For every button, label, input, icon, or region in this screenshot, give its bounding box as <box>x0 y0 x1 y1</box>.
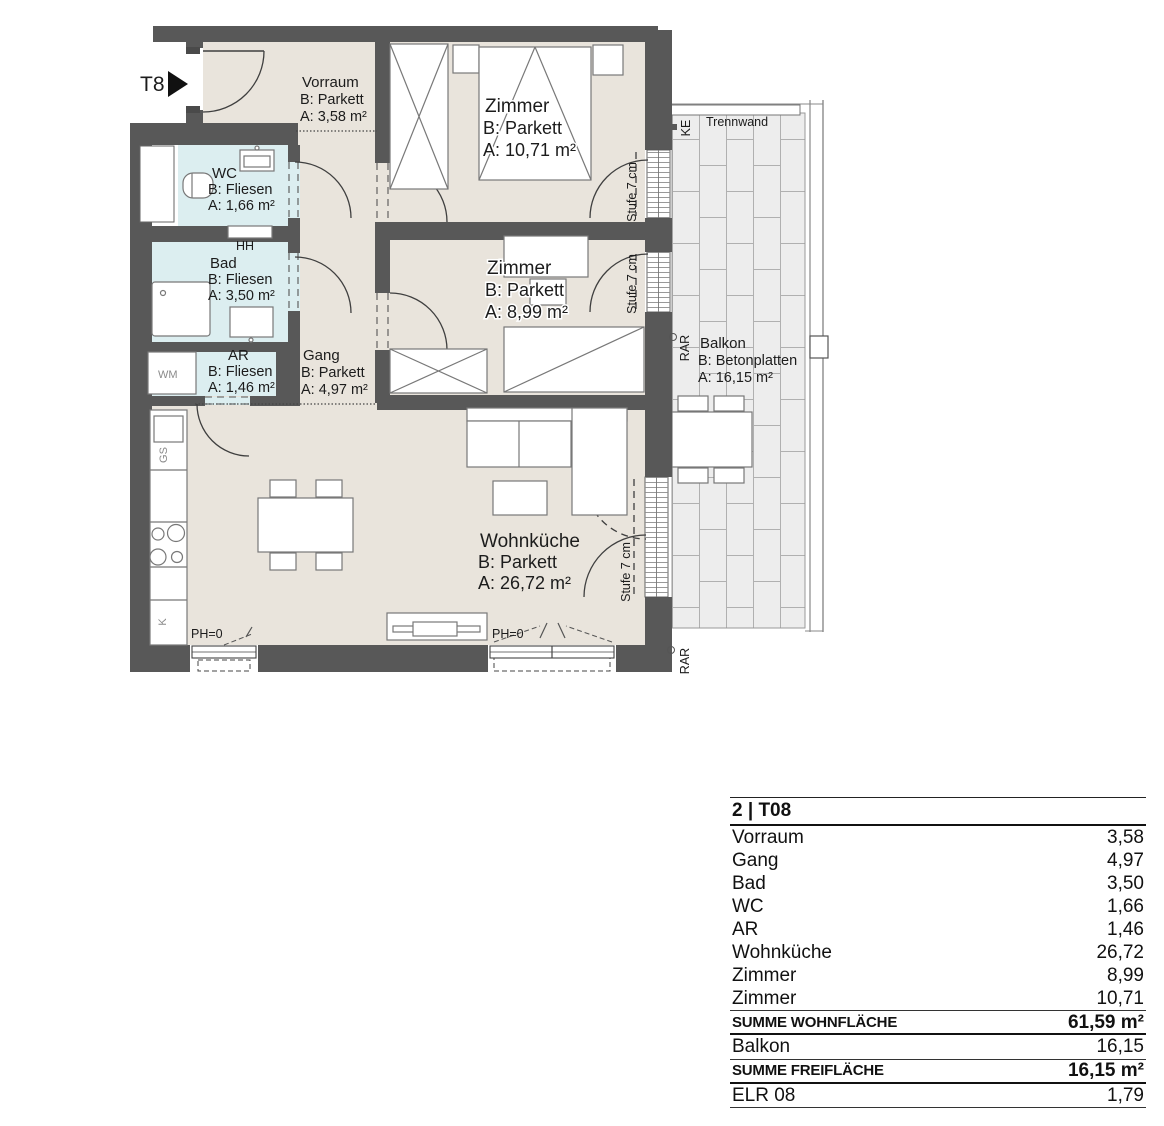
nightstand-right <box>593 45 623 75</box>
partition-wall-trennwand <box>668 105 800 115</box>
area-summary-table: 2 | T08 Vorraum3,58 Gang4,97 Bad3,50 WC1… <box>730 797 1146 1108</box>
stufe-label-3: Stufe 7 cm <box>619 542 633 602</box>
unit-marker-label: T8 <box>140 73 165 96</box>
ph0-label-left: PH=0 <box>191 627 223 641</box>
ar-area: A: 1,46 m² <box>208 380 275 396</box>
wall-bottom-1 <box>130 645 190 672</box>
hh-label: HH <box>236 239 254 253</box>
table-row: Wohnküche26,72 <box>730 941 1146 964</box>
bad-name: Bad <box>210 255 237 272</box>
wall-bad-ar-divider <box>130 342 298 352</box>
gs-label: GS <box>158 447 170 463</box>
label-vorraum: Vorraum B: Parkett A: 3,58 m² <box>300 74 367 125</box>
rar-label-top: RAR <box>678 335 692 361</box>
vorraum-floor: B: Parkett <box>300 92 364 108</box>
wc-area: A: 1,66 m² <box>208 198 275 214</box>
wohnkueche-name: Wohnküche <box>480 531 580 552</box>
zimmer-top-name: Zimmer <box>485 96 550 117</box>
ke-label: KE <box>679 120 693 137</box>
vorraum-area: A: 3,58 m² <box>300 109 367 125</box>
bed-zimmer-mid <box>504 327 644 392</box>
table-row: Zimmer10,71 <box>730 987 1146 1010</box>
zimmer-top-area: A: 10,71 m² <box>483 140 576 160</box>
shaft-box <box>140 146 174 222</box>
table-row: WC1,66 <box>730 895 1146 918</box>
ar-name: AR <box>228 347 249 364</box>
rar-label-bottom: RAR <box>678 648 692 674</box>
table-row: Gang4,97 <box>730 849 1146 872</box>
table-row: Bad3,50 <box>730 872 1146 895</box>
wall-top <box>153 26 658 42</box>
table-row: Zimmer8,99 <box>730 964 1146 987</box>
floor-plan: T8 <box>0 0 1164 760</box>
kitchen-counter <box>150 410 187 645</box>
gang-name: Gang <box>303 347 340 364</box>
elr-row: ELR 081,79 <box>730 1084 1146 1108</box>
wc-floor: B: Fliesen <box>208 182 272 198</box>
wohnkueche-floor: B: Parkett <box>478 552 557 572</box>
zimmer-mid-area: A: 8,99 m² <box>485 302 568 322</box>
nightstand-left <box>453 45 479 73</box>
shower <box>152 282 210 336</box>
zimmer-mid-name: Zimmer <box>487 258 552 279</box>
coffee-table <box>493 481 547 515</box>
wall-wc-bad-divider <box>140 226 298 242</box>
ar-floor: B: Fliesen <box>208 364 272 380</box>
table-header-label: 2 | T08 <box>732 798 791 824</box>
wall-bottom-2 <box>258 645 488 672</box>
threshold-zimmer-mid <box>647 252 670 312</box>
zimmer-top-floor: B: Parkett <box>483 118 562 138</box>
balkon-row: Balkon16,15 <box>730 1035 1146 1060</box>
gang-area: A: 4,97 m² <box>301 382 368 398</box>
ph0-label-right: PH=0 <box>492 627 524 641</box>
hh-box <box>228 226 272 238</box>
floorplan-page: T8 <box>0 0 1164 1126</box>
sum-outdoor-area-row: SUMME FREIFLÄCHE 16,15 m² <box>730 1060 1146 1084</box>
k-label: K <box>157 618 169 626</box>
wc-name: WC <box>212 165 237 182</box>
wohnkueche-area: A: 26,72 m² <box>478 573 571 593</box>
bad-area: A: 3,50 m² <box>208 288 275 304</box>
sum-living-area-row: SUMME WOHNFLÄCHE 61,59 m² <box>730 1010 1146 1035</box>
vorraum-name: Vorraum <box>302 74 359 91</box>
zimmer-mid-floor: B: Parkett <box>485 280 564 300</box>
wardrobe-zimmer-top <box>390 44 448 189</box>
gang-floor: B: Parkett <box>301 365 365 381</box>
sideboard <box>387 613 487 640</box>
table-row: AR1,46 <box>730 918 1146 941</box>
wm-label: WM <box>158 369 178 381</box>
table-header: 2 | T08 <box>730 798 1146 826</box>
wc-sink <box>240 146 274 171</box>
balkon-name: Balkon <box>700 335 746 352</box>
stufe-label-1: Stufe 7 cm <box>625 162 639 222</box>
trennwand-label: Trennwand <box>706 115 768 129</box>
stufe-label-2: Stufe 7 cm <box>625 254 639 314</box>
bad-sink <box>230 307 273 342</box>
threshold-wohnkueche <box>645 477 668 597</box>
wall-wc-top <box>130 123 298 145</box>
dishwasher-inner <box>154 416 183 442</box>
threshold-zimmer-top <box>647 150 670 218</box>
bad-floor: B: Fliesen <box>208 272 272 288</box>
balcony-light-box <box>810 336 828 358</box>
balkon-area: A: 16,15 m² <box>698 370 773 386</box>
table-row: Vorraum3,58 <box>730 826 1146 849</box>
wardrobe-zimmer-mid <box>390 349 487 393</box>
unit-marker: T8 <box>140 71 188 97</box>
balkon-floor: B: Betonplatten <box>698 353 797 369</box>
